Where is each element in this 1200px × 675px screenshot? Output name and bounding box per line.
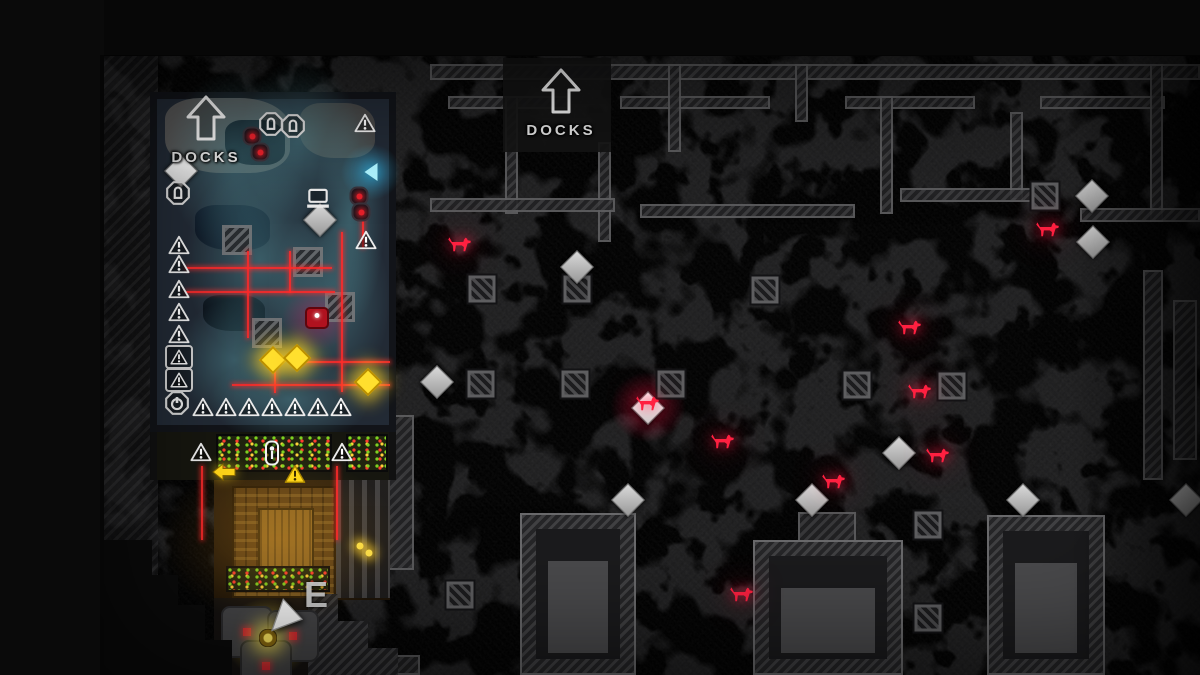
warning-triangle-icon [190, 442, 212, 462]
turret-red-light [358, 209, 364, 215]
maze-wall [430, 198, 615, 212]
guard-dog-icon [1035, 220, 1061, 240]
security-laser [247, 251, 249, 338]
alarm-triangle-icon [192, 397, 214, 417]
security-laser [289, 251, 291, 293]
maze-wall [1080, 208, 1200, 222]
engine-machine [247, 647, 285, 675]
security-laser [186, 267, 332, 269]
maze-wall [795, 64, 808, 122]
alarm-triangle-icon [331, 442, 353, 462]
guard-dog-marker [925, 446, 951, 466]
lock-icon [280, 113, 306, 139]
guard-dog-icon [925, 446, 951, 466]
yellow-warning-triangle-icon [284, 464, 306, 484]
vent-marker [1032, 183, 1059, 210]
warning-triangle-icon [192, 397, 214, 417]
warning-triangle-icon [355, 230, 377, 250]
alarm-triangle-icon [354, 113, 376, 133]
warning-triangle-icon [168, 254, 190, 274]
alarm-triangle-icon [355, 230, 377, 250]
guard-dog-icon [821, 472, 847, 492]
power-icon [164, 390, 190, 416]
player-cursor-icon [265, 593, 309, 633]
guard-dog-marker [897, 318, 923, 338]
alarm-triangle-icon [168, 302, 190, 322]
maze-wall [1143, 270, 1163, 480]
alarm-triangle-icon [330, 397, 352, 417]
engine-core [289, 632, 297, 640]
power-switch-icon [164, 390, 190, 416]
vent-window [252, 318, 282, 348]
guard-dog-icon [897, 318, 923, 338]
warning-triangle-icon [284, 397, 306, 417]
warning-triangle-icon [168, 302, 190, 322]
maze-wall [798, 512, 856, 542]
pipe-rack [336, 480, 390, 598]
security-laser [336, 466, 338, 540]
engine-core [243, 628, 251, 636]
door-lock-icon [262, 440, 282, 466]
letterbox-top [0, 0, 1200, 56]
guard-dog-icon [635, 394, 661, 414]
chevron-left-icon [365, 163, 378, 181]
vent-window [293, 247, 323, 277]
exit-arrow-icon [541, 68, 581, 114]
alarm-triangle-icon [307, 397, 329, 417]
game-viewport[interactable]: DOCKS DOCKS E [0, 0, 1200, 675]
guard-dog-icon [710, 432, 736, 452]
engine-core [262, 662, 270, 670]
alarm-triangle-icon [168, 254, 190, 274]
security-laser [341, 232, 343, 392]
alarm-triangle-icon [168, 324, 190, 344]
laptop-icon [305, 187, 331, 209]
boxed-alarm-triangle-icon [165, 345, 193, 369]
alarm-triangle-icon [284, 397, 306, 417]
left-arrow-icon [212, 463, 236, 481]
exit-label-text: DOCKS [506, 122, 616, 139]
guard-dog-marker [447, 235, 473, 255]
guard-dog-icon [907, 382, 933, 402]
machinery-block-bright [258, 508, 314, 574]
maze-wall [640, 204, 855, 218]
warning-triangle-icon [170, 349, 188, 365]
warning-triangle-icon [330, 397, 352, 417]
maze-wall [1150, 64, 1163, 222]
hazard-triangle-icon [284, 464, 306, 484]
warning-triangle-icon [168, 235, 190, 255]
warning-triangle-icon [331, 442, 353, 462]
warning-triangle-icon [354, 113, 376, 133]
guard-eye [315, 313, 320, 318]
warning-triangle-icon [215, 397, 237, 417]
maze-wall [598, 142, 611, 242]
building-outline [987, 515, 1105, 675]
maze-wall [880, 96, 893, 214]
dog-on-loot-marker [631, 392, 665, 422]
exit-arrow-icon [186, 95, 226, 141]
vent-marker [469, 276, 496, 303]
maze-wall [668, 64, 681, 152]
exit-label-text: DOCKS [151, 149, 261, 166]
padlock-hex-icon [280, 113, 306, 139]
building-outline [753, 540, 903, 675]
warning-triangle-icon [261, 397, 283, 417]
maze-wall [845, 96, 975, 109]
warning-triangle-icon [238, 397, 260, 417]
vent-marker [447, 582, 474, 609]
boxed-alarm-triangle-icon [165, 368, 193, 392]
vent-marker [468, 371, 495, 398]
alarm-triangle-icon [168, 235, 190, 255]
dock-exit-label: DOCKS [151, 95, 261, 166]
alarm-triangle-icon [261, 397, 283, 417]
zone-letter: E [304, 574, 328, 616]
security-laser [300, 361, 390, 363]
security-laser [201, 466, 203, 540]
vent-window [325, 292, 355, 322]
vent-marker [562, 371, 589, 398]
padlock-hex-icon [165, 180, 191, 206]
guard-dog-marker [907, 382, 933, 402]
computer-icon [305, 187, 331, 209]
vent-marker [915, 512, 942, 539]
turret-icon [352, 203, 371, 222]
maze-wall [620, 96, 770, 109]
maze-wall [1010, 112, 1023, 200]
alarm-triangle-icon [168, 279, 190, 299]
alarm-triangle-icon [215, 397, 237, 417]
vent-marker [915, 605, 942, 632]
alarm-triangle-icon [238, 397, 260, 417]
security-laser [186, 291, 335, 293]
warning-triangle-icon [168, 324, 190, 344]
building-interior-floor [548, 561, 608, 653]
building-interior-floor [781, 588, 875, 653]
vent-marker [752, 277, 779, 304]
letterbox-left [0, 0, 104, 675]
warning-triangle-icon [168, 279, 190, 299]
guard-dog-icon [729, 585, 755, 605]
vent-marker [844, 372, 871, 399]
maze-wall [1173, 300, 1197, 460]
turret-red-light [356, 193, 362, 199]
building-outline [520, 513, 636, 675]
yellow-light [357, 543, 364, 550]
vent-marker [939, 373, 966, 400]
guard-dog-marker [1035, 220, 1061, 240]
guard-dog-marker [821, 472, 847, 492]
alarm-triangle-icon [190, 442, 212, 462]
lock-icon [165, 180, 191, 206]
white-arrow-icon [265, 593, 309, 633]
warning-triangle-icon [170, 372, 188, 388]
guard-enemy [305, 307, 329, 329]
yellow-light [366, 550, 373, 557]
guard-dog-icon [447, 235, 473, 255]
zipper-lock-icon [262, 440, 282, 466]
dock-exit-label: DOCKS [506, 68, 616, 139]
guard-dog-marker [729, 585, 755, 605]
building-interior-floor [1015, 563, 1077, 653]
warning-triangle-icon [307, 397, 329, 417]
direction-arrow-icon [212, 463, 236, 481]
maze-wall [1040, 96, 1165, 109]
guard-dog-marker [710, 432, 736, 452]
